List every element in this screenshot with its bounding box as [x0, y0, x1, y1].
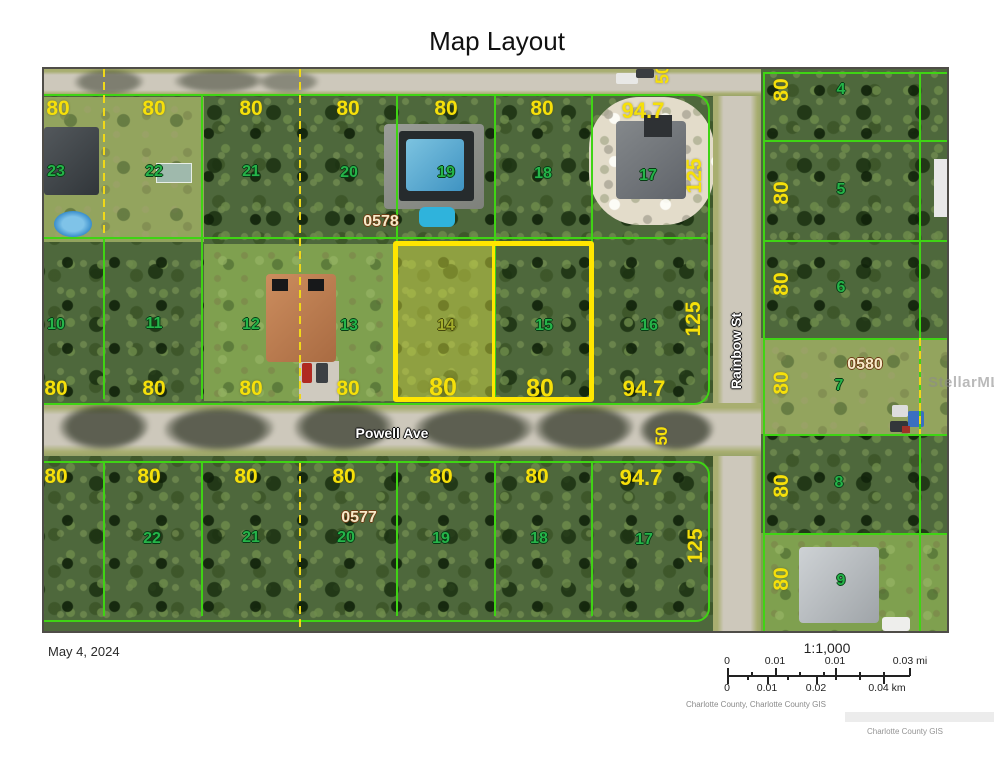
scale-label-km: 0.04 km — [868, 682, 905, 694]
house-east-partial — [934, 159, 949, 217]
scale-label-km: 0 — [724, 682, 730, 694]
scale-row-km: 00.010.020.04 km — [727, 682, 967, 694]
rainbow-st-road — [713, 69, 761, 633]
parcel-line — [591, 463, 593, 616]
dimension-label: 80 — [770, 474, 794, 497]
scale-tick — [835, 668, 837, 676]
lot-split-dashed-line — [919, 338, 921, 434]
parcel-block-north — [42, 94, 710, 405]
lot-number: 5 — [837, 181, 846, 199]
lot-split-dashed-line — [299, 463, 301, 633]
parcel-line — [396, 463, 398, 616]
white-vehicle-lot-7 — [892, 405, 908, 417]
parcel-block-south — [42, 461, 710, 622]
highlighted-lot-14-fill — [398, 246, 493, 397]
scale-tick — [787, 676, 789, 680]
dimension-label: 80 — [770, 272, 794, 295]
credit-strip — [845, 712, 994, 722]
scale-ratio: 1:1,000 — [727, 640, 927, 656]
scale-label-km: 0.01 — [757, 682, 777, 694]
parcel-line — [763, 533, 949, 535]
scale-tick — [799, 672, 801, 676]
scale-label-mi: 0.01 — [825, 655, 845, 667]
dimension-label: 80 — [770, 78, 794, 101]
scale-tick — [751, 672, 753, 676]
parcel-line — [763, 140, 949, 142]
parcel-line — [201, 239, 203, 399]
dimension-label: 80 — [770, 181, 794, 204]
lot-number: 8 — [835, 474, 844, 492]
red-object-lot-7 — [902, 426, 910, 433]
parcel-line — [494, 463, 496, 616]
scale-label-mi: 0.03 mi — [893, 655, 927, 667]
parcel-line — [103, 463, 105, 616]
scale-tick — [835, 676, 837, 680]
page-title: Map Layout — [0, 26, 994, 57]
scale-row-mi: 00.010.010.03 mi — [727, 655, 967, 667]
scale-tick — [747, 676, 749, 680]
house-lot-9 — [799, 547, 879, 623]
parcel-line — [763, 338, 949, 340]
parcel-line — [201, 96, 203, 237]
credit-text: Charlotte County GIS — [855, 727, 955, 736]
parcel-line — [201, 463, 203, 616]
lot-number: 6 — [837, 279, 846, 297]
scale-label-km: 0.02 — [806, 682, 826, 694]
highlighted-parcel-divider — [492, 246, 495, 397]
map-canvas: 80808080808094.71255080808080808094.7125… — [42, 67, 949, 633]
scale-bar: 00.010.010.03 mi 00.010.020.04 km — [727, 655, 967, 699]
parcel-line — [763, 434, 949, 436]
lot-split-dashed-line — [103, 69, 105, 237]
parcel-line — [763, 72, 765, 633]
lot-split-dashed-line — [299, 69, 301, 399]
attribution-text: Charlotte County, Charlotte County GIS — [686, 700, 826, 709]
scale-label-mi: 0 — [724, 655, 730, 667]
scale-tick — [823, 672, 825, 676]
blue-tarp-lot-7 — [908, 411, 924, 427]
page: Map Layout — [0, 0, 994, 768]
parcel-line — [103, 239, 105, 399]
parcel-line — [44, 237, 706, 239]
parcel-line — [763, 240, 949, 242]
lot-number: 4 — [837, 81, 846, 99]
scale-tick — [727, 668, 729, 676]
white-car-top-road — [616, 73, 638, 84]
scale-tick — [859, 676, 861, 680]
white-van-lot-9 — [882, 617, 910, 631]
scale-tick — [909, 668, 911, 676]
scale-tick — [775, 668, 777, 676]
dark-car-top-road — [636, 69, 654, 78]
parcel-line — [763, 72, 949, 74]
map-date: May 4, 2024 — [48, 644, 120, 659]
scale-label-mi: 0.01 — [765, 655, 785, 667]
stellar-mls-watermark: StellarMLS — [928, 374, 994, 391]
